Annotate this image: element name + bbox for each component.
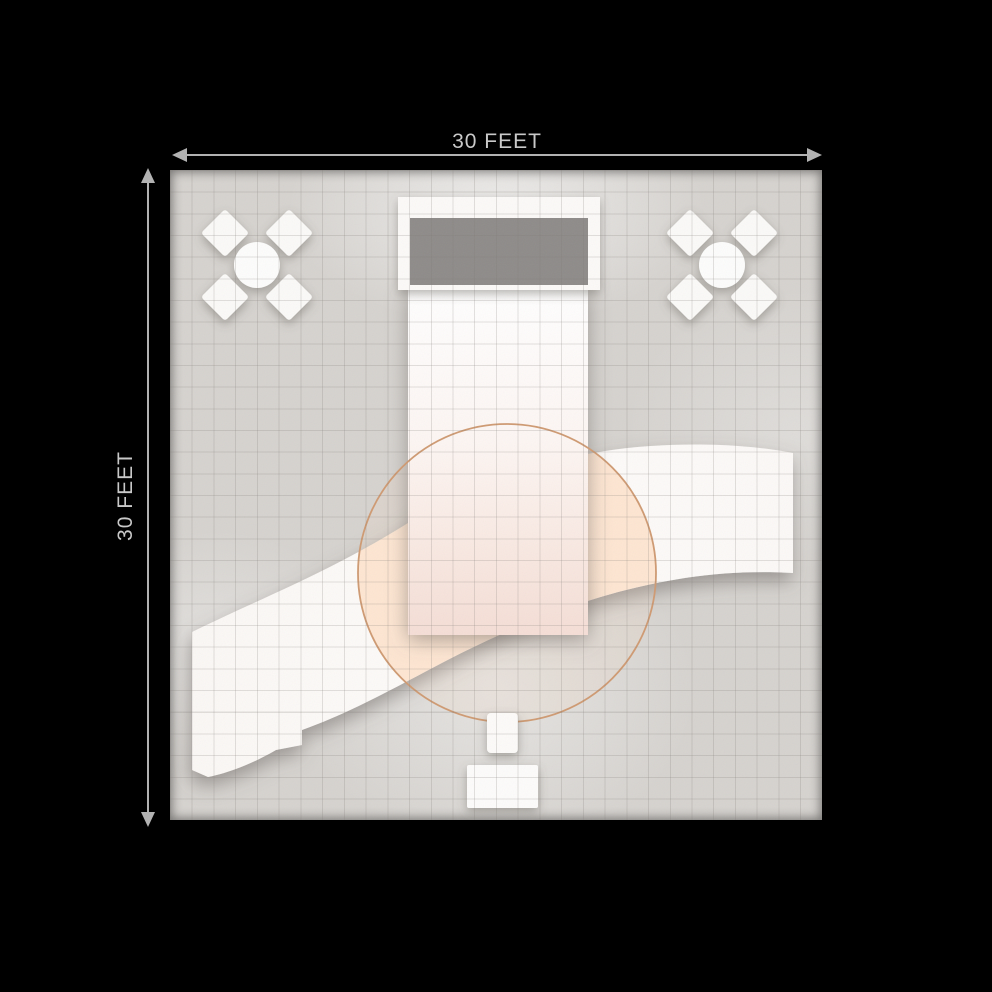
left-dimension-arrow-bottom bbox=[141, 812, 155, 827]
seating-group-top-right bbox=[666, 209, 778, 321]
booth-structures bbox=[170, 170, 822, 820]
left-dimension-arrow-top bbox=[141, 168, 155, 183]
stool bbox=[487, 713, 518, 753]
small-table bbox=[467, 765, 538, 808]
top-dimension-label: 30 FEET bbox=[452, 130, 542, 153]
round-table bbox=[699, 242, 745, 288]
booth-floor bbox=[170, 170, 822, 820]
round-table bbox=[234, 242, 280, 288]
top-dimension-arrow-right bbox=[807, 148, 822, 162]
booth-floorplan-render: { "scene": { "title": "30 x 30 foot exhi… bbox=[0, 0, 992, 992]
seating-group-top-left bbox=[201, 209, 313, 321]
top-dimension-arrow-left bbox=[172, 148, 187, 162]
left-dimension-label: 30 FEET bbox=[114, 451, 137, 541]
center-tower-wall bbox=[408, 285, 588, 635]
header-graphic-panel bbox=[410, 218, 588, 285]
